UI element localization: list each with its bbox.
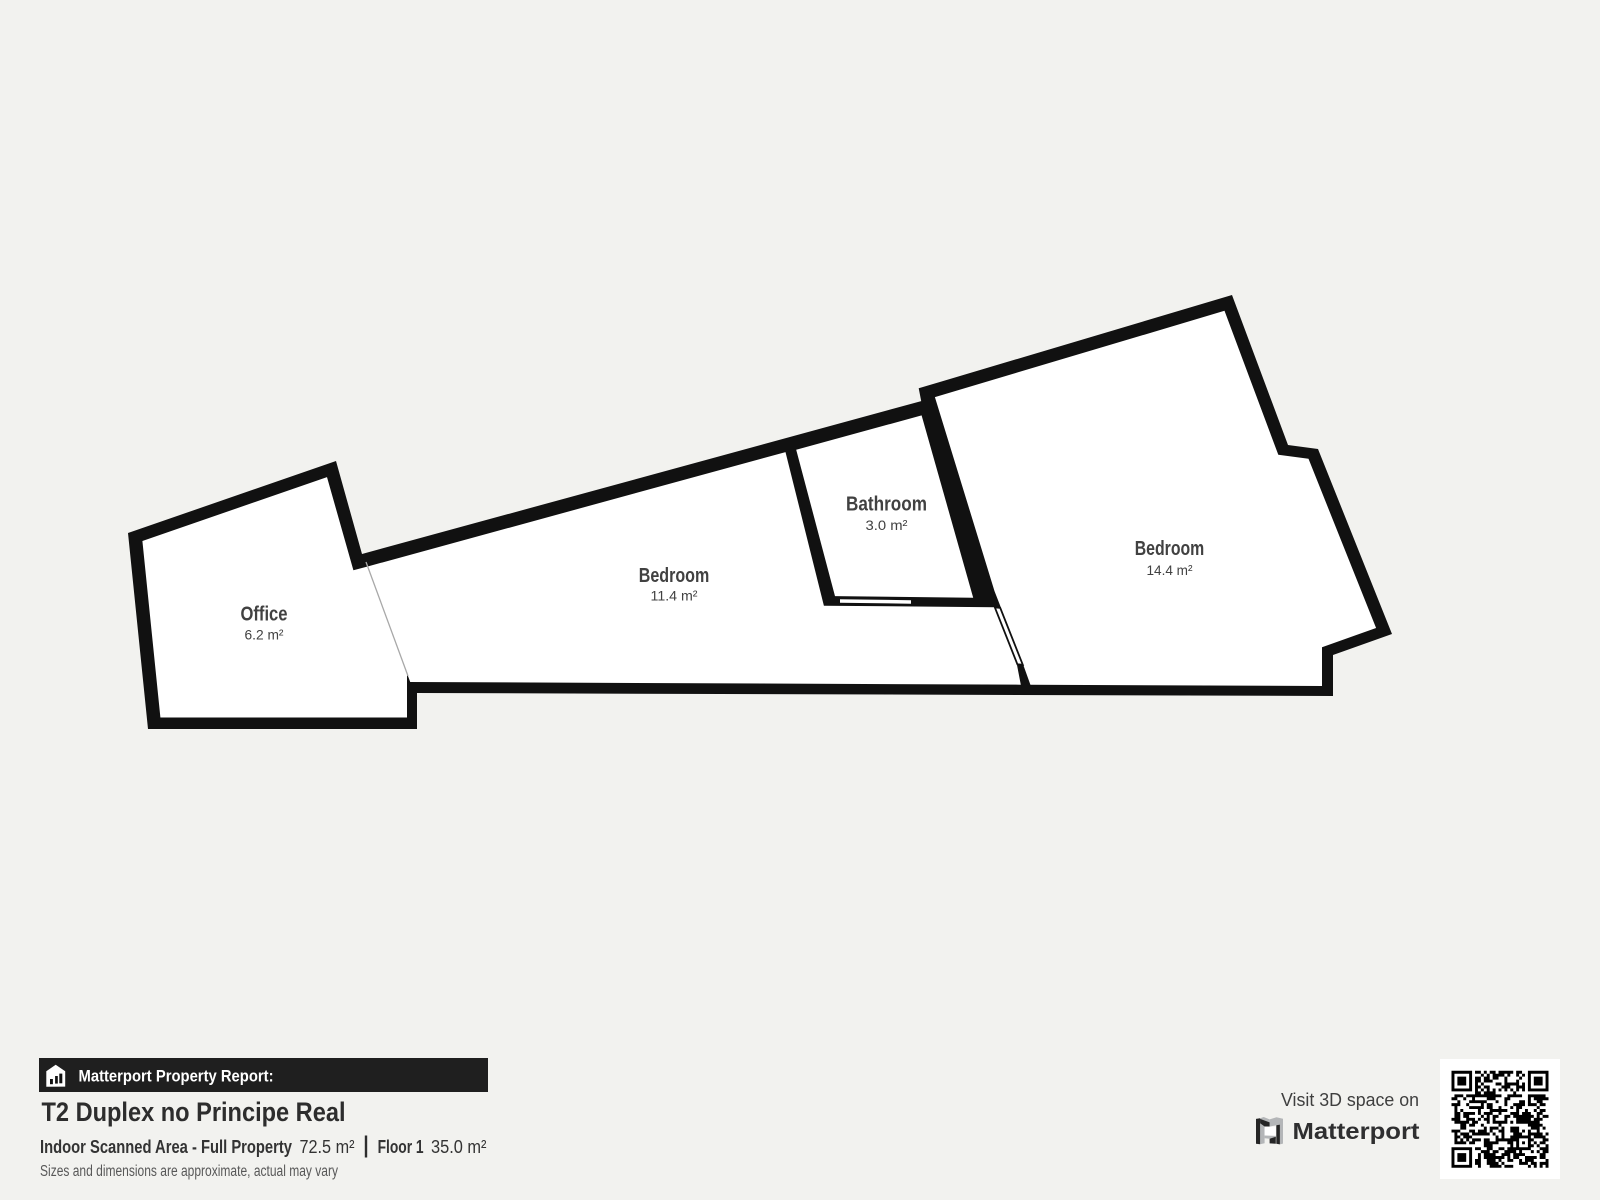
svg-text:Matterport Property Report:: Matterport Property Report: <box>79 1067 274 1085</box>
svg-text:35.0 m²: 35.0 m² <box>431 1136 487 1157</box>
svg-text:3.0 m²: 3.0 m² <box>866 518 908 534</box>
svg-text:Bathroom: Bathroom <box>846 494 927 516</box>
svg-text:Bedroom: Bedroom <box>639 565 710 587</box>
svg-text:Bedroom: Bedroom <box>1135 538 1205 560</box>
svg-text:Sizes and dimensions are appro: Sizes and dimensions are approximate, ac… <box>40 1163 338 1180</box>
svg-text:Matterport: Matterport <box>1293 1118 1420 1144</box>
svg-text:6.2 m²: 6.2 m² <box>245 628 284 644</box>
svg-text:14.4 m²: 14.4 m² <box>1147 563 1193 579</box>
svg-text:Office: Office <box>241 604 288 626</box>
svg-text:72.5 m²: 72.5 m² <box>300 1136 355 1157</box>
svg-text:T2 Duplex no Principe Real: T2 Duplex no Principe Real <box>42 1097 346 1127</box>
svg-text:Floor 1: Floor 1 <box>378 1136 424 1157</box>
svg-text:Indoor Scanned Area - Full Pro: Indoor Scanned Area - Full Property <box>40 1136 293 1157</box>
svg-text:Visit 3D space on: Visit 3D space on <box>1281 1090 1419 1110</box>
svg-text:11.4 m²: 11.4 m² <box>651 589 698 605</box>
